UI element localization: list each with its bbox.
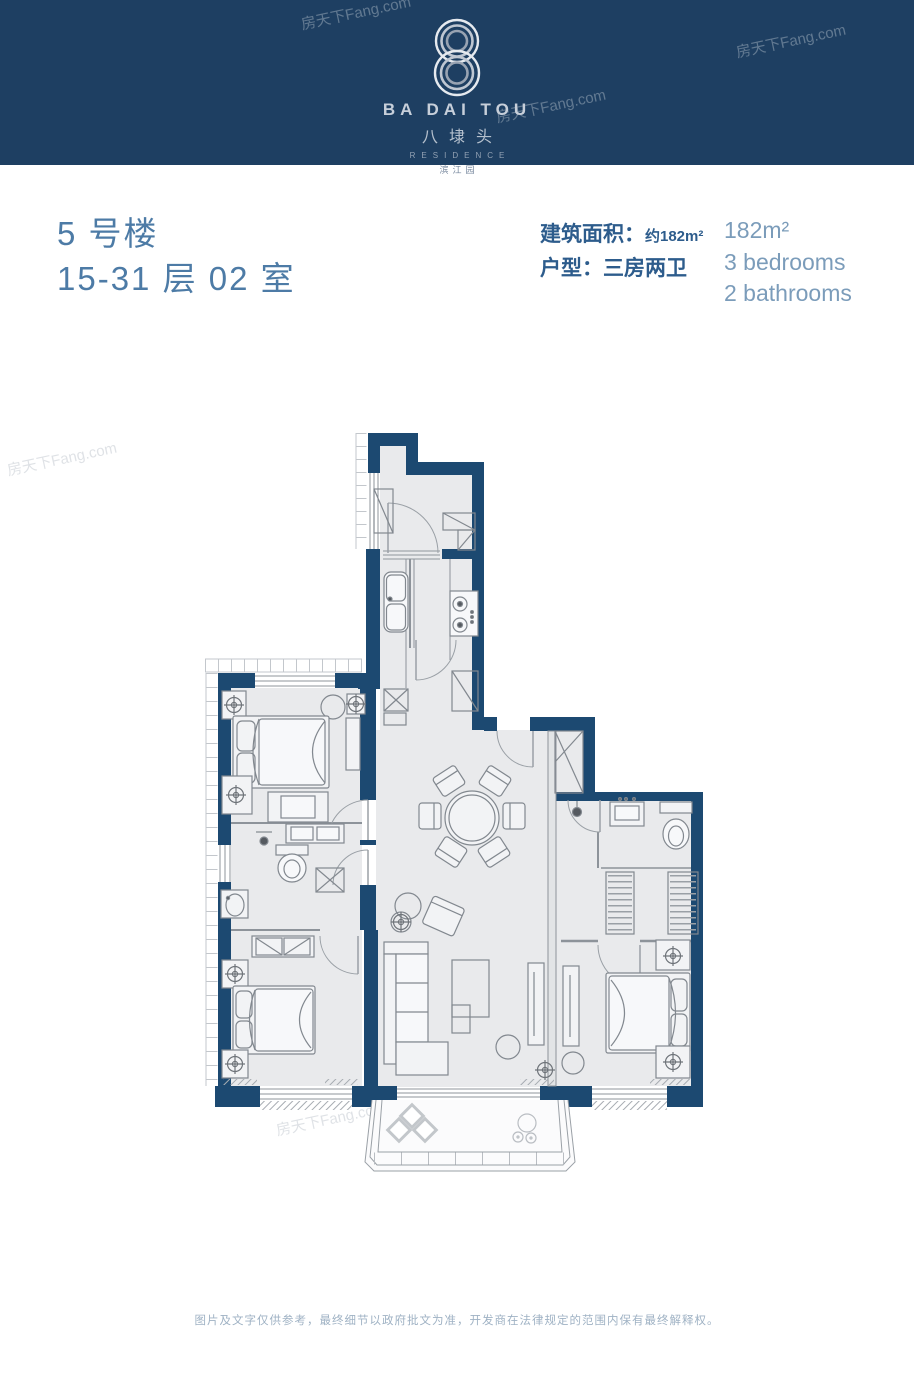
- logo-estate-text: 滨江园: [0, 163, 914, 176]
- unit-specs-english: 182m² 3 bedrooms 2 bathrooms: [724, 215, 852, 310]
- unit-title: 5 号楼 15-31 层 02 室: [57, 211, 296, 301]
- brand-logo: BA DAI TOU 八埭头 RESIDENCE 滨江园: [0, 14, 914, 176]
- unit-building: 5 号楼: [57, 211, 296, 256]
- logo-residence-text: RESIDENCE: [0, 151, 914, 160]
- floorplan-svg: [195, 420, 715, 1180]
- unit-floors-room: 15-31 层 02 室: [57, 256, 296, 301]
- header-banner: 房天下Fang.com 房天下Fang.com 房天下Fang.com BA D…: [0, 0, 914, 165]
- unit-specs: 建筑面积：约182m² 户型：三房两卫: [540, 219, 703, 285]
- area-label: 建筑面积：: [540, 223, 645, 246]
- disclaimer-text: 图片及文字仅供参考，最终细节以政府批文为准，开发商在法律规定的范围内保有最终解释…: [0, 1312, 914, 1328]
- bedrooms-english: 3 bedrooms: [724, 247, 852, 279]
- logo-8-icon: [409, 14, 505, 98]
- type-label: 户型：: [540, 257, 603, 280]
- logo-chinese-text: 八埭头: [0, 123, 914, 147]
- watermark: 房天下Fang.com: [5, 437, 119, 481]
- balcony: [365, 1100, 575, 1171]
- area-value: 约182m²: [645, 228, 703, 245]
- logo-latin-text: BA DAI TOU: [0, 100, 914, 120]
- type-value: 三房两卫: [603, 257, 687, 280]
- area-english: 182m²: [724, 215, 852, 247]
- bathrooms-english: 2 bathrooms: [724, 278, 852, 310]
- page: 房天下Fang.com 房天下Fang.com 房天下Fang.com BA D…: [0, 0, 914, 1400]
